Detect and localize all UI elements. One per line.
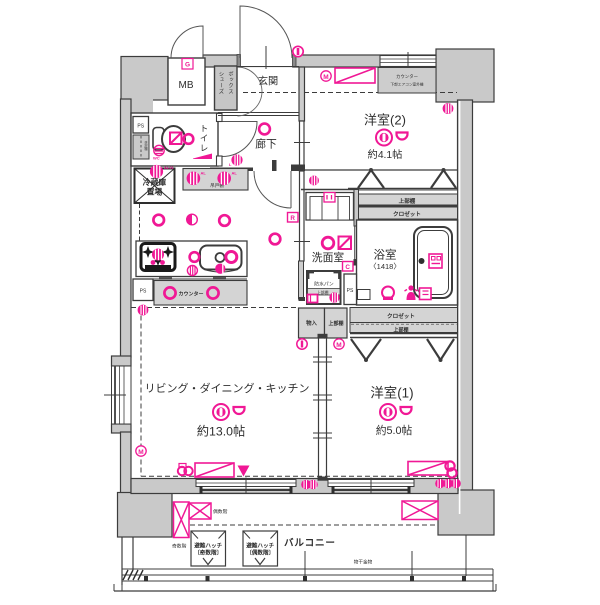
svg-text:M: M xyxy=(138,449,143,456)
svg-text:PS: PS xyxy=(137,124,144,130)
svg-text:クロゼット: クロゼット xyxy=(393,210,421,218)
svg-text:浴室: 浴室 xyxy=(374,248,397,262)
svg-text:リビング・ダイニング・キッチン: リビング・ダイニング・キッチン xyxy=(145,381,310,395)
svg-text:AL: AL xyxy=(201,171,207,176)
svg-text:防水パン: 防水パン xyxy=(314,281,334,288)
svg-text:洗面室: 洗面室 xyxy=(312,250,345,264)
svg-text:M: M xyxy=(336,342,341,349)
svg-text:M: M xyxy=(323,74,328,81)
svg-text:避難ハッチ: 避難ハッチ xyxy=(194,542,222,550)
svg-text:カウンター: カウンター xyxy=(178,291,203,298)
svg-text:偶数階: 偶数階 xyxy=(213,508,228,515)
svg-text:洋室(1): 洋室(1) xyxy=(370,385,413,401)
svg-text:上部棚: 上部棚 xyxy=(399,197,416,205)
svg-text:下部エアコン室外機: 下部エアコン室外機 xyxy=(390,82,423,87)
svg-text:PS: PS xyxy=(140,289,147,295)
svg-text:クロゼット: クロゼット xyxy=(387,312,415,320)
svg-text:洋室(2): 洋室(2) xyxy=(364,113,406,128)
svg-text:避難ハッチ: 避難ハッチ xyxy=(246,542,274,550)
svg-text:洗戸棚: 洗戸棚 xyxy=(143,140,147,151)
svg-text:WC: WC xyxy=(153,156,160,161)
svg-text:上部棚: 上部棚 xyxy=(317,290,329,295)
svg-text:玄関: 玄関 xyxy=(258,75,278,88)
svg-text:G: G xyxy=(185,62,190,69)
svg-text:AL: AL xyxy=(232,171,238,176)
svg-text:上部棚: 上部棚 xyxy=(328,320,343,327)
svg-text:AL21: AL21 xyxy=(164,165,175,170)
svg-text:〔奇数階〕: 〔奇数階〕 xyxy=(194,549,222,557)
svg-text:物入: 物入 xyxy=(306,319,317,327)
svg-text:シューズ: シューズ xyxy=(218,71,225,95)
svg-text:バルコニー: バルコニー xyxy=(284,537,336,549)
svg-text:〔偶数階〕: 〔偶数階〕 xyxy=(246,549,274,557)
svg-text:物干金物: 物干金物 xyxy=(354,559,373,566)
svg-text:MB: MB xyxy=(179,80,194,91)
svg-text:約4.1帖: 約4.1帖 xyxy=(368,148,403,161)
svg-text:冷蔵庫: 冷蔵庫 xyxy=(143,177,167,187)
svg-text:約13.0帖: 約13.0帖 xyxy=(197,424,246,439)
svg-text:ボックス: ボックス xyxy=(227,71,234,95)
svg-text:置場: 置場 xyxy=(147,187,163,197)
svg-text:〈1418〉: 〈1418〉 xyxy=(369,262,401,271)
svg-text:PS: PS xyxy=(347,288,354,294)
svg-text:トイレ: トイレ xyxy=(199,124,209,153)
svg-text:約5.0帖: 約5.0帖 xyxy=(376,423,413,437)
svg-text:奇数階: 奇数階 xyxy=(172,543,187,550)
svg-text:上部棚: 上部棚 xyxy=(393,327,408,334)
svg-text:カウンター: カウンター xyxy=(396,73,418,80)
svg-text:廊下: 廊下 xyxy=(255,137,277,151)
svg-text:R: R xyxy=(290,215,295,222)
svg-text:C: C xyxy=(345,264,350,271)
